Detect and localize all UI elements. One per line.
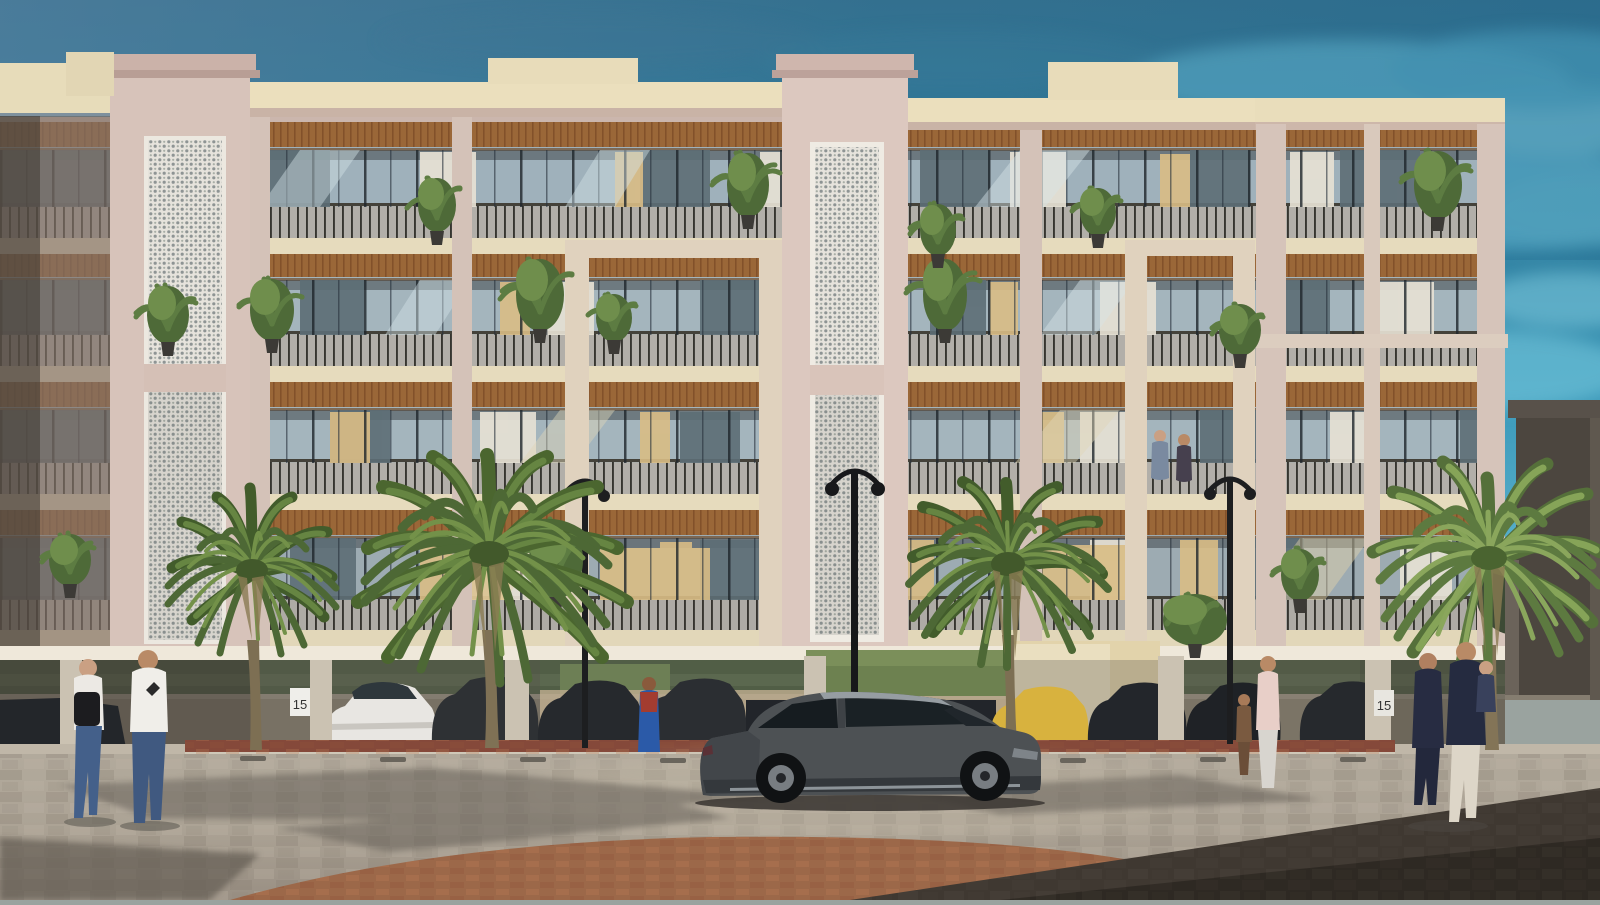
svg-text:15: 15	[1377, 698, 1391, 713]
svg-text:15: 15	[293, 697, 307, 712]
